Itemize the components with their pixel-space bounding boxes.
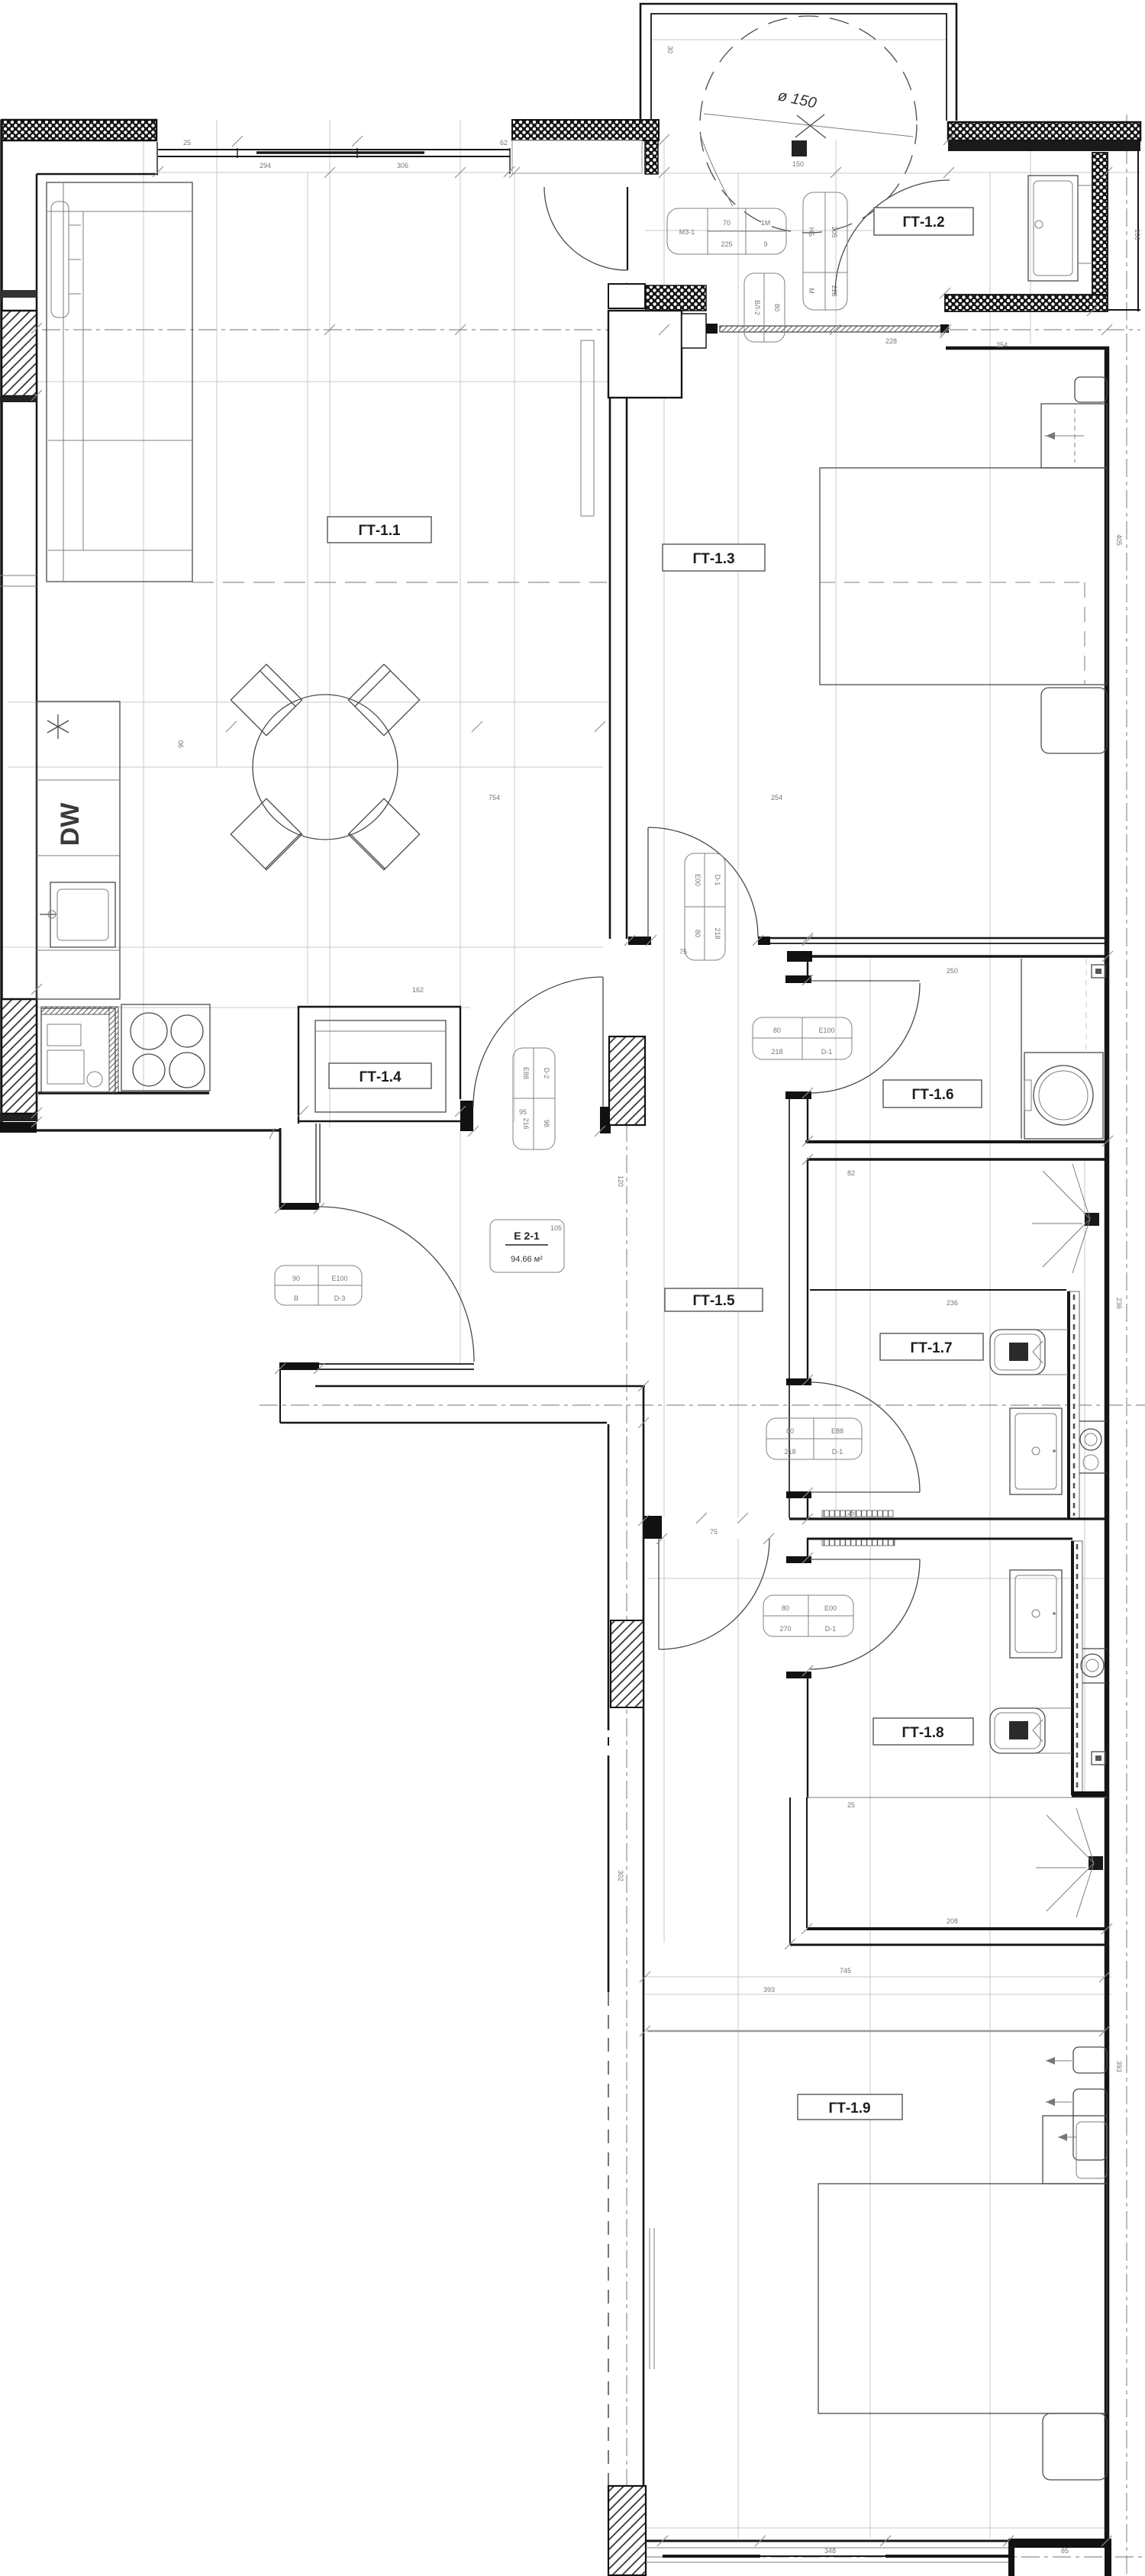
- svg-text:ГТ-1.3: ГТ-1.3: [692, 551, 734, 567]
- svg-text:306: 306: [397, 162, 408, 169]
- svg-text:62: 62: [500, 139, 508, 147]
- svg-text:D-1: D-1: [832, 1448, 843, 1456]
- svg-text:105: 105: [550, 1224, 562, 1232]
- svg-text:ГТ-1.9: ГТ-1.9: [828, 2100, 870, 2117]
- svg-text:ГТ-1.6: ГТ-1.6: [911, 1087, 953, 1103]
- svg-text:Е00: Е00: [824, 1604, 837, 1612]
- svg-text:90: 90: [292, 1275, 300, 1282]
- svg-text:ГТ-1.4: ГТ-1.4: [359, 1069, 402, 1085]
- svg-text:270: 270: [779, 1625, 791, 1633]
- svg-text:208: 208: [947, 1917, 958, 1925]
- svg-text:254: 254: [771, 794, 782, 801]
- svg-text:70: 70: [723, 219, 731, 227]
- svg-text:М3-1: М3-1: [679, 228, 695, 236]
- svg-text:218: 218: [771, 1048, 782, 1056]
- svg-text:205: 205: [831, 226, 838, 237]
- svg-text:ГТ-1.8: ГТ-1.8: [901, 1725, 943, 1741]
- svg-text:294: 294: [260, 162, 271, 169]
- svg-text:В: В: [294, 1294, 298, 1302]
- svg-text:82: 82: [847, 1169, 855, 1177]
- svg-text:D-1: D-1: [825, 1625, 837, 1633]
- svg-text:М: М: [808, 288, 815, 294]
- svg-text:250: 250: [947, 967, 958, 975]
- svg-text:218: 218: [714, 927, 721, 939]
- svg-text:120: 120: [617, 1175, 624, 1187]
- svg-text:ГТ-1.2: ГТ-1.2: [902, 214, 944, 231]
- svg-text:ГТ-1.1: ГТ-1.1: [358, 523, 401, 539]
- svg-text:254: 254: [996, 341, 1008, 349]
- svg-text:90: 90: [177, 740, 185, 748]
- svg-text:Е 2-1: Е 2-1: [514, 1230, 540, 1242]
- svg-text:216: 216: [522, 1117, 530, 1129]
- svg-text:Е88: Е88: [522, 1067, 530, 1079]
- svg-text:218: 218: [784, 1448, 795, 1456]
- svg-text:100: 100: [1134, 229, 1141, 240]
- svg-text:150: 150: [792, 160, 804, 168]
- svg-text:80: 80: [773, 1027, 781, 1034]
- svg-text:1М: 1М: [761, 219, 771, 227]
- svg-text:236: 236: [947, 1299, 958, 1307]
- svg-text:Е100: Е100: [331, 1275, 347, 1282]
- svg-text:Е00: Е00: [694, 874, 702, 886]
- svg-text:228: 228: [831, 285, 838, 296]
- svg-text:302: 302: [617, 1870, 624, 1881]
- svg-text:D-1: D-1: [714, 875, 721, 886]
- svg-text:85: 85: [1061, 2547, 1069, 2555]
- svg-text:80: 80: [773, 304, 781, 311]
- svg-text:754: 754: [489, 794, 500, 801]
- svg-text:25: 25: [183, 139, 191, 147]
- svg-text:745: 745: [840, 1967, 851, 1975]
- svg-text:25: 25: [847, 1801, 855, 1809]
- svg-text:D-3: D-3: [334, 1294, 346, 1302]
- svg-text:25: 25: [847, 1509, 855, 1517]
- svg-text:80: 80: [782, 1604, 789, 1612]
- svg-text:D-2: D-2: [543, 1068, 550, 1079]
- svg-text:ГТ-1.7: ГТ-1.7: [910, 1340, 952, 1356]
- svg-text:393: 393: [763, 1986, 775, 1994]
- svg-text:ВЛ-2: ВЛ-2: [753, 300, 761, 315]
- svg-text:94.66 м²: 94.66 м²: [511, 1255, 543, 1264]
- svg-text:236: 236: [1115, 1298, 1123, 1309]
- svg-text:ГТ-1.5: ГТ-1.5: [692, 1293, 735, 1309]
- svg-text:95: 95: [519, 1108, 527, 1116]
- svg-text:80: 80: [694, 930, 702, 937]
- svg-text:Е88: Е88: [831, 1427, 843, 1435]
- svg-text:9: 9: [763, 240, 767, 248]
- svg-text:НБ: НБ: [808, 227, 815, 237]
- svg-text:30: 30: [666, 46, 674, 53]
- svg-text:162: 162: [412, 986, 424, 994]
- svg-text:75: 75: [710, 1528, 718, 1536]
- svg-text:228: 228: [885, 337, 897, 345]
- svg-text:75: 75: [679, 948, 687, 956]
- svg-text:393: 393: [1115, 2061, 1123, 2072]
- svg-text:405: 405: [1115, 534, 1123, 546]
- svg-text:348: 348: [824, 2547, 836, 2555]
- svg-text:DW: DW: [56, 802, 85, 846]
- svg-text:80: 80: [786, 1427, 794, 1435]
- svg-text:225: 225: [721, 240, 732, 248]
- svg-text:D-1: D-1: [821, 1048, 833, 1056]
- svg-text:98: 98: [543, 1120, 550, 1127]
- svg-text:Е100: Е100: [818, 1027, 834, 1034]
